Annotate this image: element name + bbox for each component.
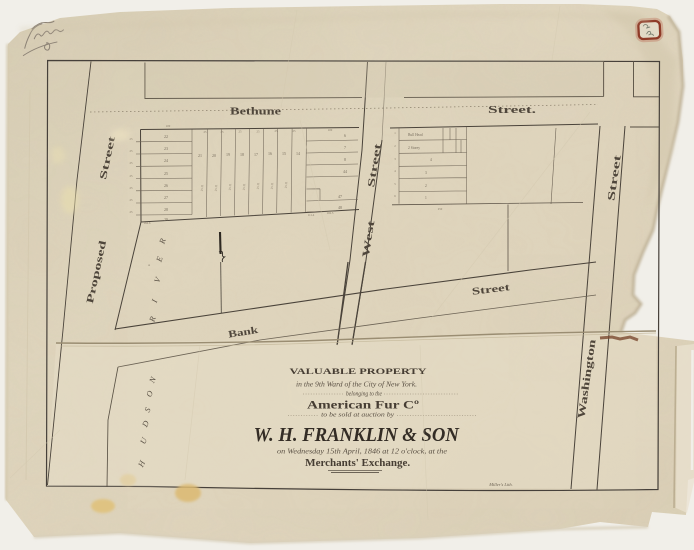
svg-text:24: 24	[164, 158, 168, 163]
svg-text:25: 25	[130, 210, 134, 214]
svg-text:on Wednesday 15th April, 1846: on Wednesday 15th April, 1846 at 12 o'cl…	[277, 448, 447, 456]
svg-text:to be sold at auction by: to be sold at auction by	[321, 412, 394, 419]
svg-text:25: 25	[257, 129, 261, 133]
svg-text:25: 25	[204, 130, 208, 134]
svg-text:15: 15	[282, 151, 286, 156]
svg-text:25: 25	[293, 129, 297, 133]
svg-text:48: 48	[338, 205, 342, 210]
svg-text:4: 4	[430, 158, 432, 162]
svg-text:25: 25	[239, 130, 243, 134]
svg-text:18: 18	[240, 152, 244, 157]
svg-text:17: 17	[254, 152, 258, 157]
svg-text:25.11: 25.11	[228, 183, 233, 190]
svg-text:26: 26	[164, 183, 168, 188]
svg-text:6: 6	[344, 133, 346, 138]
svg-text:25.11: 25.11	[284, 181, 289, 188]
svg-text:2 Storey: 2 Storey	[408, 146, 420, 150]
svg-text:Merchants' Exchange.: Merchants' Exchange.	[305, 458, 411, 469]
svg-text:Street.: Street.	[488, 104, 536, 116]
svg-text:25.11: 25.11	[242, 183, 247, 190]
svg-text:25.11: 25.11	[200, 184, 205, 191]
svg-text:29: 29	[164, 217, 168, 222]
svg-text:25: 25	[275, 129, 279, 133]
svg-text:28: 28	[164, 207, 168, 212]
svg-text:25: 25	[130, 174, 134, 178]
svg-text:1: 1	[425, 196, 427, 200]
svg-text:25: 25	[130, 198, 134, 202]
svg-text:Bethune: Bethune	[230, 106, 281, 118]
svg-text:2: 2	[425, 184, 427, 188]
svg-text:23: 23	[164, 146, 168, 151]
svg-text:25.11: 25.11	[256, 182, 261, 189]
svg-text:25: 25	[130, 137, 134, 141]
svg-text:25: 25	[130, 186, 134, 190]
svg-text:25: 25	[130, 149, 134, 153]
svg-text:100: 100	[166, 124, 171, 128]
svg-text:American Fur Cº: American Fur Cº	[307, 400, 419, 412]
svg-text:25.11: 25.11	[214, 184, 219, 191]
svg-text:164.6: 164.6	[144, 221, 151, 225]
svg-text:22: 22	[164, 134, 168, 139]
svg-text:100: 100	[328, 128, 333, 132]
svg-text:25: 25	[221, 130, 225, 134]
svg-text:16: 16	[268, 151, 272, 156]
svg-text:Miller's Lith.: Miller's Lith.	[488, 482, 512, 487]
svg-text:21: 21	[198, 153, 202, 158]
svg-text:W. H. FRANKLIN & SON: W. H. FRANKLIN & SON	[254, 424, 460, 446]
svg-text:111.4: 111.4	[308, 213, 315, 217]
svg-text:25: 25	[130, 161, 134, 165]
svg-text:27: 27	[164, 195, 168, 200]
svg-text:8: 8	[344, 157, 346, 162]
svg-text:14: 14	[296, 151, 300, 156]
svg-text:102.5: 102.5	[327, 211, 334, 215]
svg-text:in the 9th Ward of the City of: in the 9th Ward of the City of New York.	[296, 381, 417, 389]
svg-text:47: 47	[338, 194, 342, 199]
svg-text:3: 3	[425, 171, 427, 175]
svg-text:belonging to the: belonging to the	[346, 391, 382, 398]
svg-text:19: 19	[226, 152, 230, 157]
svg-text:Bull Head: Bull Head	[408, 133, 423, 137]
svg-text:25: 25	[164, 171, 168, 176]
svg-text:VALUABLE PROPERTY: VALUABLE PROPERTY	[290, 367, 427, 376]
svg-text:250: 250	[438, 207, 443, 211]
svg-text:7: 7	[344, 145, 346, 150]
svg-text:20: 20	[212, 153, 216, 158]
svg-text:44: 44	[343, 169, 347, 174]
svg-text:25.11: 25.11	[270, 182, 275, 189]
